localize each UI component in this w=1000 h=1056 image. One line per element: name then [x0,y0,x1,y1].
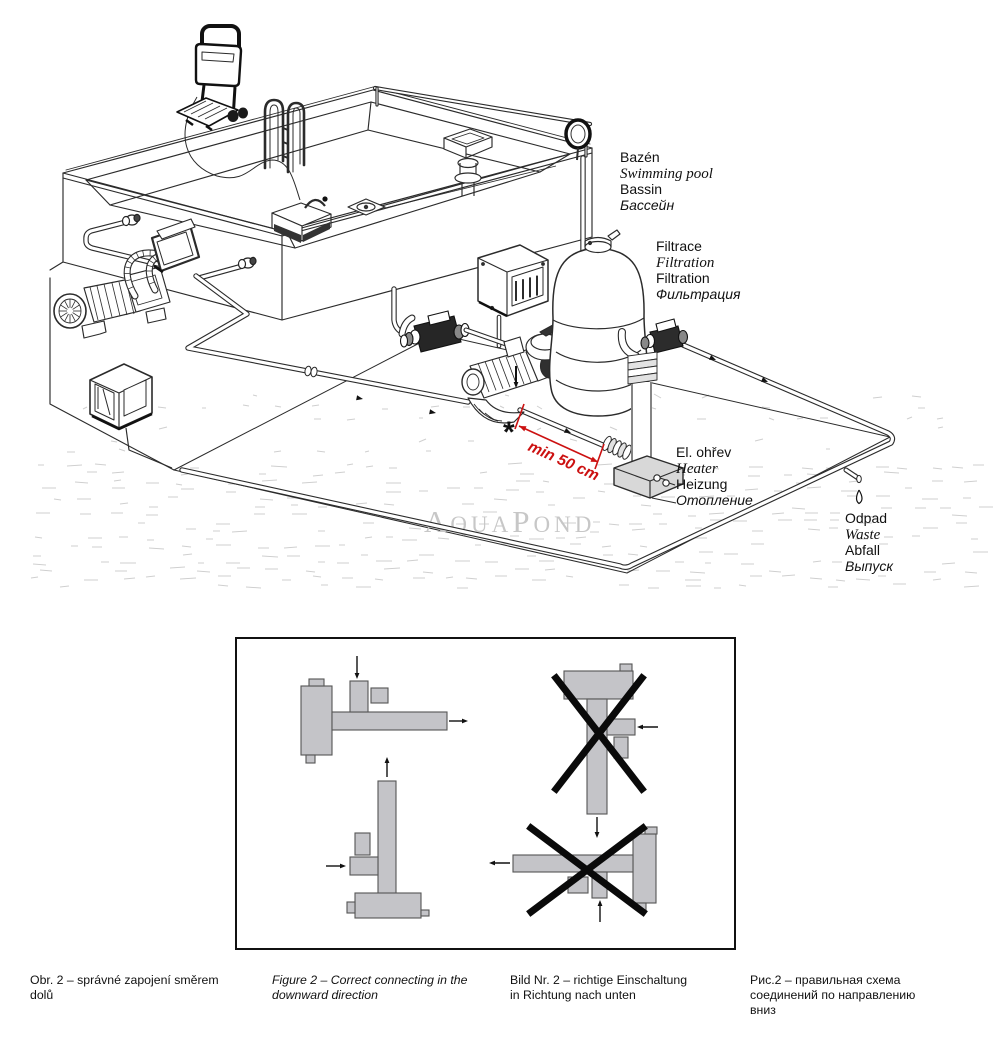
svg-text:Выпуск: Выпуск [845,558,894,574]
svg-text:Waste: Waste [845,527,881,543]
svg-text:Bazén: Bazén [620,149,660,165]
svg-text:El. ohřev: El. ohřev [676,444,731,460]
svg-text:Рис.2 – правильная схема: Рис.2 – правильная схема [750,973,901,987]
svg-text:*: * [503,416,515,449]
svg-text:in Richtung nach unten: in Richtung nach unten [510,988,636,1002]
svg-text:Bassin: Bassin [620,181,662,197]
svg-text:Отопление: Отопление [676,492,753,508]
svg-text:Бассейн: Бассейн [620,197,674,213]
svg-text:вниз: вниз [750,1003,776,1017]
svg-text:Abfall: Abfall [845,542,880,558]
svg-text:Filtrace: Filtrace [656,238,702,254]
svg-text:Heater: Heater [675,461,718,477]
svg-text:Figure 2 – Correct connecting: Figure 2 – Correct connecting in the [272,973,468,987]
svg-text:downward direction: downward direction [272,988,378,1002]
svg-text:Heizung: Heizung [676,476,727,492]
svg-text:Swimming pool: Swimming pool [620,166,713,182]
svg-text:Odpad: Odpad [845,510,887,526]
svg-text:Bild Nr. 2 – richtige Einschal: Bild Nr. 2 – richtige Einschaltung [510,973,687,987]
svg-text:соединений по направлению: соединений по направлению [750,988,915,1002]
svg-text:Obr. 2 – správné zapojení směr: Obr. 2 – správné zapojení směrem [30,973,219,987]
svg-text:Фильтрация: Фильтрация [656,286,741,302]
svg-text:AQUAPOND: AQUAPOND [424,504,595,539]
svg-text:min 50 cm: min 50 cm [525,438,601,484]
svg-text:dolů: dolů [30,988,53,1002]
svg-text:Filtration: Filtration [655,255,714,271]
svg-text:Filtration: Filtration [656,270,710,286]
